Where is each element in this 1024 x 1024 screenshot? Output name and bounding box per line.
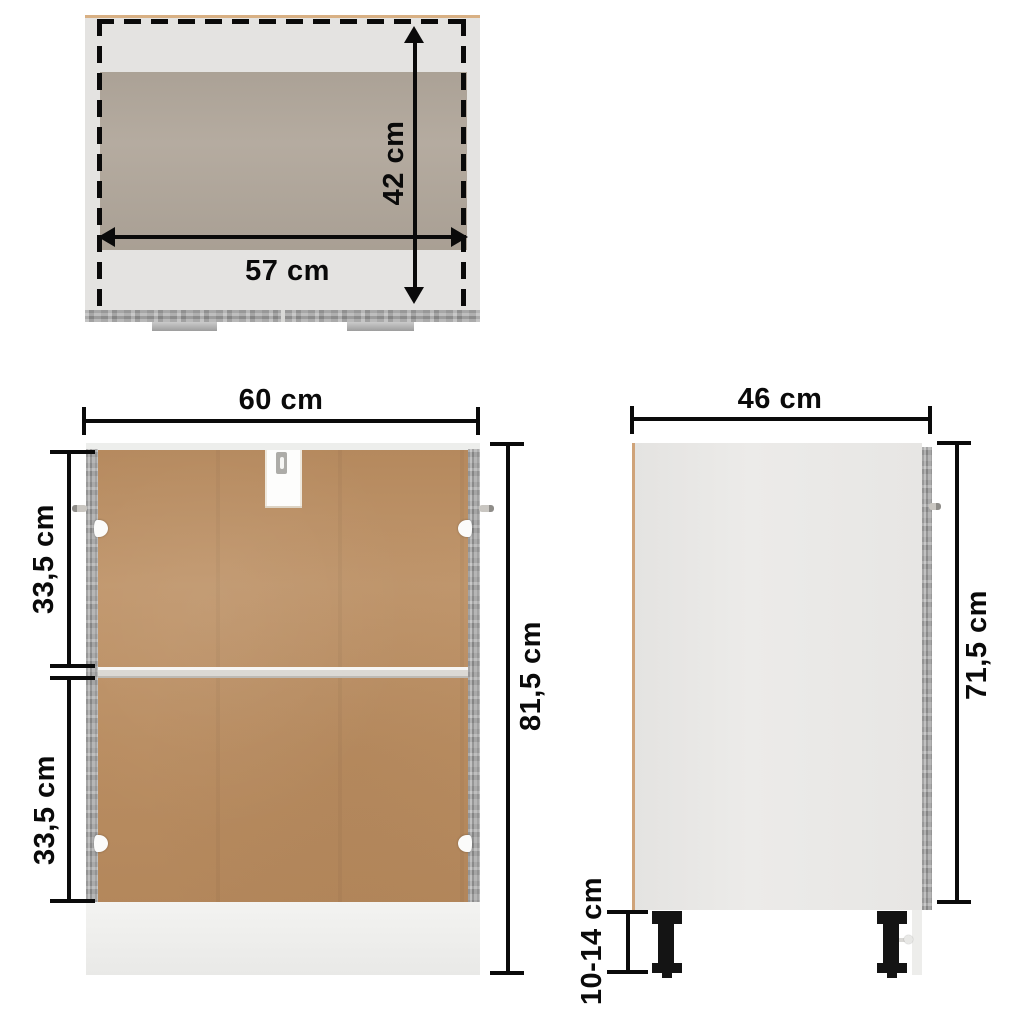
legs-height-dim-line — [626, 912, 630, 972]
body-height-tick-top — [937, 441, 971, 445]
lower-section-tick-top — [50, 676, 95, 680]
total-height-label: 81,5 cm — [515, 611, 547, 741]
upper-section-tick-top — [50, 450, 95, 454]
body-height-tick-bottom — [937, 900, 971, 904]
middle-shelf-edge — [98, 667, 468, 678]
total-height-dim-line — [506, 444, 510, 973]
lower-section-label: 33,5 cm — [29, 745, 61, 875]
side-depth-dim-line — [632, 417, 930, 421]
cabinet-dimension-diagram: 57 cm 42 cm 60 cm 33,5 cm — [0, 0, 1024, 1024]
front-plinth-area — [86, 902, 480, 975]
side-back-edge — [632, 443, 635, 910]
side-front-edge — [922, 447, 932, 910]
top-width-label: 57 cm — [225, 255, 350, 287]
lower-section-dim-line — [67, 678, 71, 901]
side-depth-label: 46 cm — [716, 383, 844, 415]
upper-section-tick-bottom — [50, 664, 95, 668]
width-arrow-line — [112, 235, 454, 239]
dashed-border-top — [97, 19, 465, 24]
dashed-border-left — [97, 19, 102, 310]
arrow-head-up-icon — [404, 26, 424, 43]
top-view-interior — [100, 72, 467, 250]
upper-section-label: 33,5 cm — [28, 494, 60, 624]
arrow-head-left-icon — [98, 227, 115, 247]
hinge-pin-left — [72, 505, 87, 512]
total-height-tick-bottom — [490, 971, 524, 975]
front-width-label: 60 cm — [219, 384, 343, 416]
side-depth-tick-left — [630, 406, 634, 434]
arrow-head-down-icon — [404, 287, 424, 304]
top-view-front-edge-gap — [281, 310, 285, 322]
top-depth-label: 42 cm — [378, 108, 410, 218]
legs-height-label: 10-14 cm — [576, 859, 608, 1023]
hinge-mount-top-right — [458, 520, 472, 537]
front-top-edge — [86, 443, 480, 450]
side-hinge-pin — [929, 503, 941, 510]
keyhole-slot-hole — [280, 457, 284, 469]
side-panel — [635, 443, 922, 910]
hinge-mount-bottom-right — [458, 835, 472, 852]
body-height-label: 71,5 cm — [961, 580, 993, 710]
legs-height-tick-bottom — [607, 970, 648, 974]
top-view-tab-left — [152, 322, 217, 331]
side-back-panel-strip — [912, 910, 922, 975]
arrow-head-right-icon — [451, 227, 468, 247]
top-view-tab-right — [347, 322, 414, 331]
total-height-tick-top — [490, 442, 524, 446]
upper-section-dim-line — [67, 452, 71, 666]
hinge-pin-right — [479, 505, 494, 512]
body-height-dim-line — [955, 443, 959, 902]
legs-height-tick-top — [607, 910, 648, 914]
depth-arrow-line — [413, 42, 417, 290]
front-width-dim-line — [84, 419, 478, 423]
lower-section-tick-bottom — [50, 899, 95, 903]
leg-adjuster-disc — [904, 935, 913, 944]
dashed-border-right — [461, 19, 466, 310]
front-width-tick-right — [476, 407, 480, 435]
front-width-tick-left — [82, 407, 86, 435]
side-depth-tick-right — [928, 406, 932, 434]
